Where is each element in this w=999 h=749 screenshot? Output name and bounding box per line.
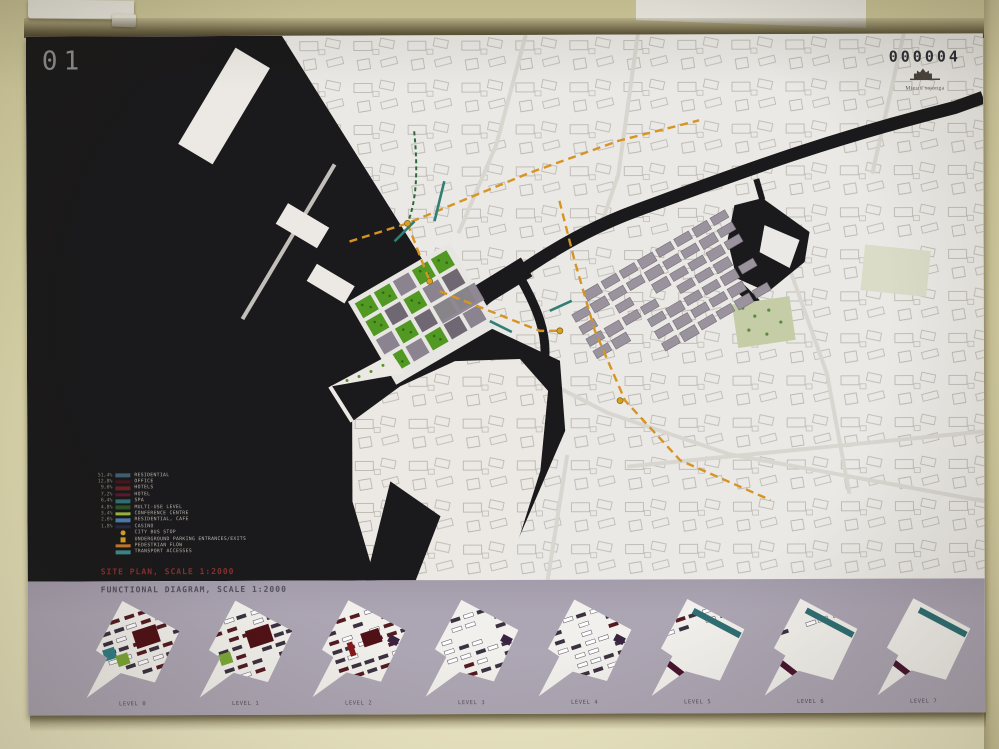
level-label: LEVEL 4 bbox=[528, 700, 641, 706]
legend-swatch bbox=[115, 474, 130, 478]
legend-percent: 7,2% bbox=[88, 492, 115, 497]
site-plan-caption: SITE PLAN, SCALE 1:2000 bbox=[101, 567, 235, 576]
legend-label: SPA bbox=[134, 499, 144, 504]
level-label: LEVEL 5 bbox=[641, 699, 754, 705]
competition-board: 01 000004 Miestu sajunga 51,4%RESIDENTIA… bbox=[26, 33, 985, 715]
level-diagram: LEVEL 1 bbox=[189, 595, 302, 715]
entry-number: 000004 bbox=[889, 47, 961, 65]
level-label: LEVEL 3 bbox=[415, 700, 528, 706]
stamp-text: Miestu sajunga bbox=[889, 85, 961, 91]
legend-swatch bbox=[115, 506, 130, 510]
legend-swatch bbox=[115, 480, 130, 484]
legend-percent: 3,4% bbox=[88, 511, 115, 516]
level-label: LEVEL 2 bbox=[302, 700, 415, 706]
legend-label: MULTI-USE LEVEL bbox=[134, 505, 182, 510]
legend-percent: 12,8% bbox=[88, 479, 115, 484]
organizer-stamp: Miestu sajunga bbox=[889, 67, 961, 91]
level-diagram: LEVEL 6 bbox=[754, 593, 867, 713]
legend-label: HOTEL bbox=[134, 492, 150, 497]
legend-percent: 4,8% bbox=[88, 505, 115, 510]
legend-percent: 1,8% bbox=[89, 524, 116, 529]
legend-row: TRANSPORT ACCESSES bbox=[89, 548, 319, 555]
legend-label: RESIDENTIAL bbox=[134, 473, 169, 478]
wall-right-strip bbox=[984, 0, 999, 749]
legend-percent: 6,4% bbox=[88, 499, 115, 504]
legend-label: TRANSPORT ACCESSES bbox=[135, 549, 192, 554]
level-label: LEVEL 7 bbox=[867, 698, 980, 704]
legend-swatch bbox=[115, 512, 130, 516]
level-label: LEVEL 6 bbox=[754, 699, 867, 705]
legend-percent: 2,6% bbox=[88, 518, 115, 523]
legend-label: UNDERGROUND PARKING ENTRANCES/EXITS bbox=[135, 537, 247, 542]
level-diagram: LEVEL 4 bbox=[528, 594, 641, 714]
level-plan-icon bbox=[868, 592, 978, 704]
level-plan-icon bbox=[416, 594, 526, 706]
level-diagram: LEVEL 0 bbox=[76, 595, 189, 715]
photo-of-presentation-board: 01 000004 Miestu sajunga 51,4%RESIDENTIA… bbox=[0, 0, 999, 749]
legend-swatch bbox=[115, 499, 130, 503]
level-diagram: LEVEL 5 bbox=[641, 593, 754, 713]
board-number: 01 bbox=[42, 46, 85, 76]
legend-label: CONFERENCE CENTRE bbox=[134, 511, 188, 516]
level-plan-icon bbox=[529, 594, 639, 706]
legend-percent: 51,4% bbox=[88, 473, 115, 478]
level-plan-icon bbox=[190, 595, 300, 707]
functional-diagram-strip: FUNCTIONAL DIAGRAM, SCALE 1:2000 LEVEL 0… bbox=[28, 578, 985, 715]
map-legend: 51,4%RESIDENTIAL12,8%OFFICE9,6%HOTELS7,2… bbox=[88, 472, 318, 556]
level-diagram: LEVEL 7 bbox=[867, 592, 980, 712]
level-label: LEVEL 0 bbox=[76, 701, 189, 707]
legend-label: PEDESTRIAN FLOW bbox=[135, 543, 183, 548]
level-label: LEVEL 1 bbox=[189, 701, 302, 707]
level-diagram: LEVEL 2 bbox=[302, 594, 415, 714]
bus-stop-icon bbox=[121, 531, 126, 536]
legend-swatch bbox=[116, 544, 131, 548]
legend-swatch bbox=[115, 493, 130, 497]
functional-diagram-caption: FUNCTIONAL DIAGRAM, SCALE 1:2000 bbox=[101, 585, 287, 595]
board-drop-shadow bbox=[30, 712, 986, 731]
legend-label: OFFICE bbox=[134, 479, 153, 484]
legend-swatch bbox=[116, 550, 131, 554]
legend-percent: 9,6% bbox=[88, 486, 115, 491]
level-plan-icon bbox=[77, 595, 187, 707]
level-plan-icon bbox=[642, 593, 752, 705]
legend-swatch bbox=[115, 486, 130, 490]
legend-label: CITY BUS STOP bbox=[135, 530, 176, 535]
level-diagrams-row: LEVEL 0LEVEL 1LEVEL 2LEVEL 3LEVEL 4LEVEL… bbox=[28, 592, 985, 715]
legend-label: CASINO bbox=[135, 524, 154, 529]
level-plan-icon bbox=[755, 593, 865, 705]
legend-swatch bbox=[116, 518, 131, 522]
stamp-emblem-icon bbox=[908, 67, 942, 80]
legend-swatch bbox=[116, 525, 131, 529]
entry-stamp-block: 000004 Miestu sajunga bbox=[889, 47, 961, 91]
parking-icon bbox=[121, 537, 126, 542]
level-diagram: LEVEL 3 bbox=[415, 594, 528, 714]
legend-label: HOTELS bbox=[134, 486, 153, 491]
level-plan-icon bbox=[303, 594, 413, 706]
legend-label: RESIDENTIAL, CAFE bbox=[134, 518, 188, 523]
